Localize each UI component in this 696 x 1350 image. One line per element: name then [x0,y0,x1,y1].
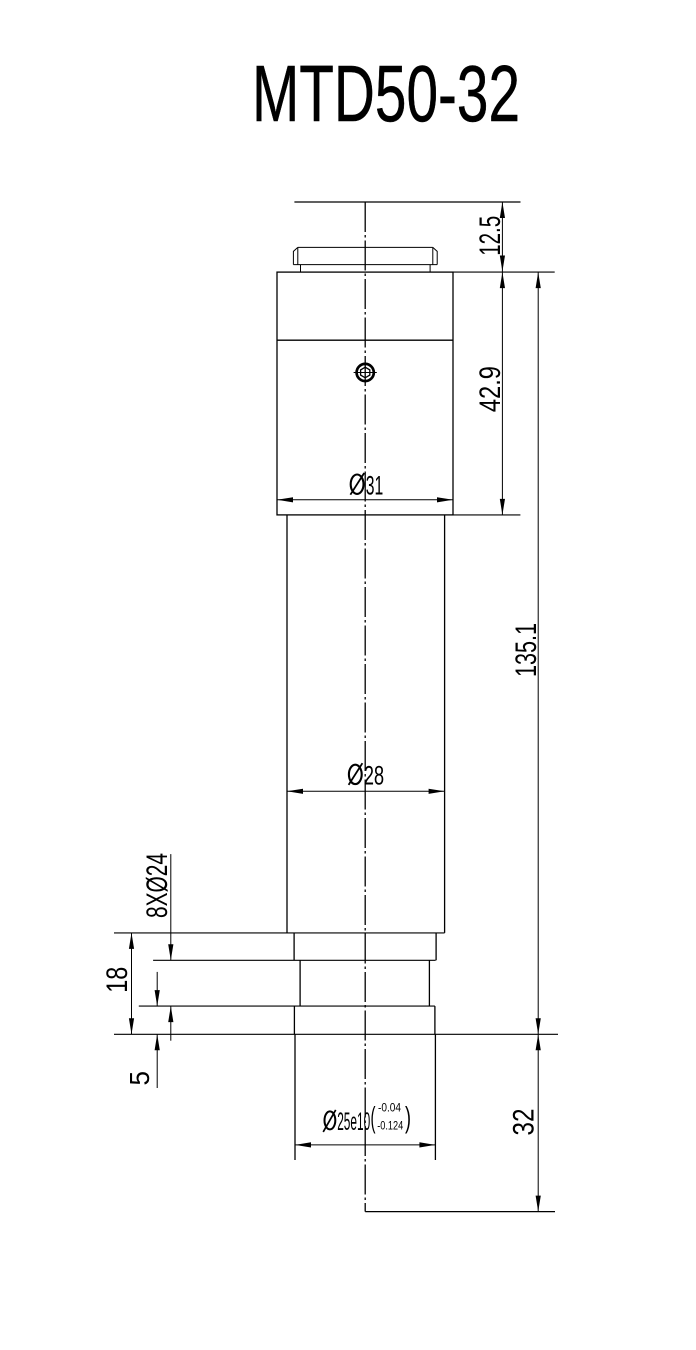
svg-text:42.9: 42.9 [474,366,507,412]
svg-text:12.5: 12.5 [474,216,507,256]
svg-text:-0.04: -0.04 [378,1103,402,1115]
svg-text:32: 32 [508,1109,541,1136]
svg-text:): ) [405,1102,411,1135]
svg-text:18: 18 [101,967,134,993]
svg-text:5: 5 [124,1071,155,1086]
svg-text:MTD50-32: MTD50-32 [252,49,520,138]
svg-text:-0.124: -0.124 [377,1121,403,1133]
svg-text:31: 31 [366,470,384,500]
svg-text:8XØ24: 8XØ24 [141,853,174,918]
svg-text:(: ( [371,1102,376,1135]
svg-text:28: 28 [364,761,385,791]
svg-text:25e10: 25e10 [337,1108,370,1136]
svg-text:135.1: 135.1 [510,623,543,677]
